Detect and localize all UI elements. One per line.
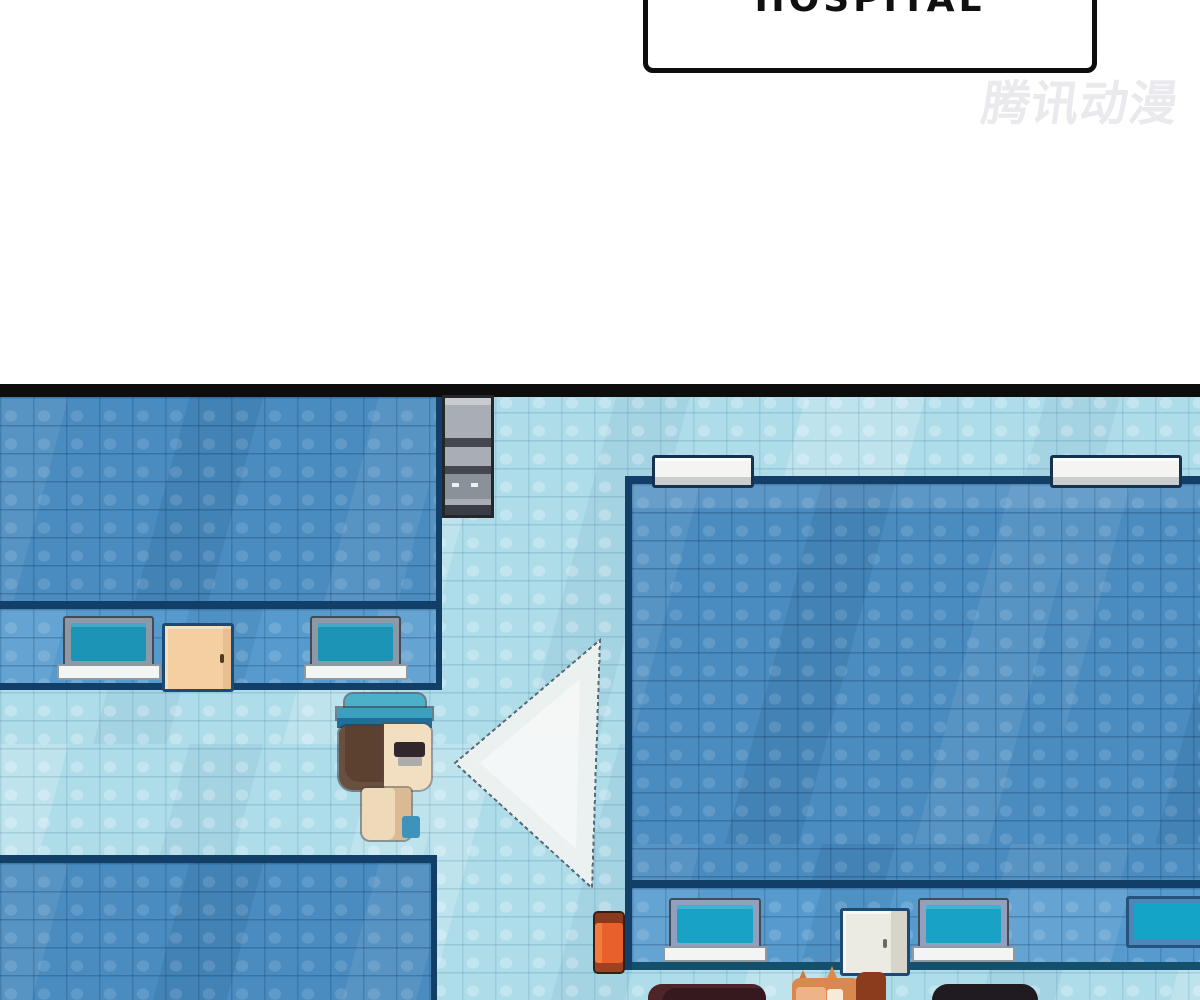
fire-extinguisher: [593, 911, 625, 974]
monitor-screen: [1134, 903, 1200, 940]
cabinet-shelf-divider: [445, 466, 491, 474]
room-bottomleft-floor: [0, 863, 431, 1000]
speech-bubble-text: HOSPITAL: [648, 0, 1092, 20]
nurse-collar: [402, 816, 420, 838]
room-right-wall-edge-bottom: [632, 962, 1200, 970]
publisher-watermark: 腾讯动漫: [977, 72, 1196, 138]
laptop-keyboard: [57, 664, 161, 680]
cabinet-base: [445, 505, 491, 515]
room-topleft-wall-edge-top: [0, 601, 442, 609]
orange-figure-white-patch: [827, 989, 843, 1000]
white-bench-1: [652, 455, 754, 488]
room-bottomleft-wall-edge: [0, 855, 437, 863]
panel-top-border: [0, 384, 1200, 397]
peeking-head-dark-red: [648, 984, 766, 1000]
room-right-floor: [632, 484, 1200, 880]
room-right-wall-left: [625, 476, 632, 970]
laptop-screen: [677, 905, 753, 943]
cabinet-handle: [452, 483, 459, 487]
speech-bubble: HOSPITAL: [643, 0, 1097, 73]
hospital-map-scene: [0, 384, 1200, 1000]
peeking-figure-rust: [856, 972, 886, 1000]
wall-monitor: [1126, 896, 1200, 948]
room-bottomleft-wall-right: [431, 855, 437, 1000]
cabinet-shelf-divider: [445, 438, 491, 447]
room-right-wall-edge-mid: [632, 880, 1200, 888]
supply-cabinet: [442, 395, 494, 518]
door-topleft-room: [162, 623, 234, 692]
laptop-screen: [926, 905, 1001, 943]
laptop-keyboard: [663, 946, 767, 962]
laptop-keyboard: [304, 664, 408, 680]
door-handle: [883, 939, 887, 948]
laptop-screen: [318, 623, 393, 661]
orange-figure-highlight: [796, 987, 826, 1000]
vision-cone: [440, 634, 610, 894]
white-bench-2: [1050, 455, 1182, 488]
peeking-head-black: [932, 984, 1038, 1000]
nurse-eye: [394, 742, 425, 757]
cabinet-top: [445, 398, 491, 405]
laptop-keyboard: [912, 946, 1015, 962]
room-topleft-floor: [0, 397, 442, 601]
laptop-screen: [71, 623, 146, 661]
nurse-eye-shadow: [398, 757, 422, 766]
door-handle: [220, 654, 224, 663]
door-right-room: [840, 908, 910, 976]
cabinet-handle: [471, 483, 478, 487]
